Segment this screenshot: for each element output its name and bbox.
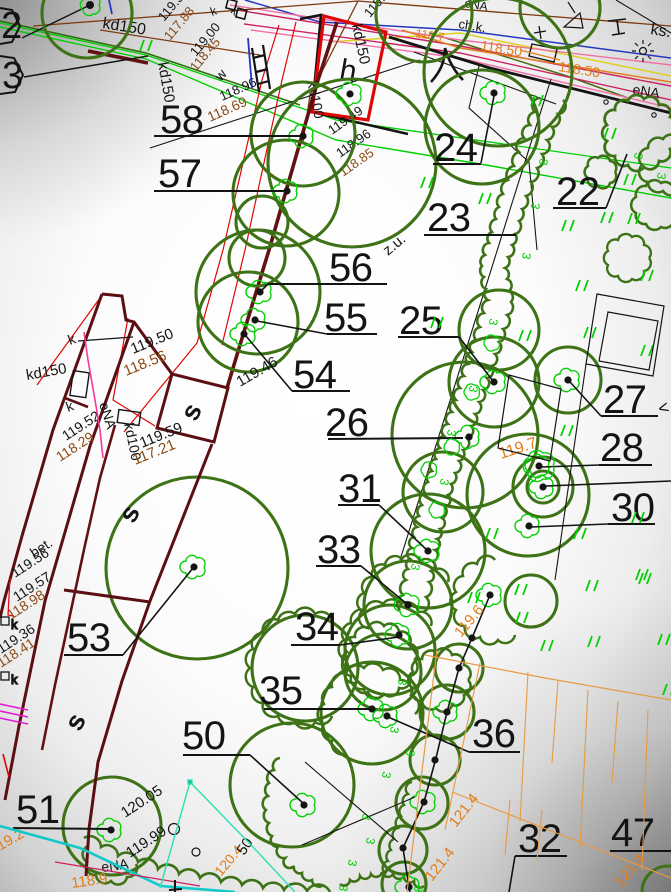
svg-text:32: 32 [518,817,562,861]
svg-text:36: 36 [472,712,516,756]
svg-text:53: 53 [67,616,111,660]
svg-text:35: 35 [259,669,303,713]
svg-text:k: k [11,672,18,687]
svg-text:57: 57 [158,152,202,196]
svg-text:47: 47 [611,811,655,855]
svg-text:50: 50 [182,714,226,758]
svg-text:34: 34 [295,605,339,649]
svg-text:k: k [11,617,18,632]
svg-text:2: 2 [1,5,22,47]
svg-text:23: 23 [427,196,471,240]
svg-text:28: 28 [600,426,644,470]
svg-text:51: 51 [16,788,60,832]
svg-text:3: 3 [2,55,23,97]
svg-text:3: 3 [411,884,426,892]
svg-text:ks.: ks. [649,21,671,41]
